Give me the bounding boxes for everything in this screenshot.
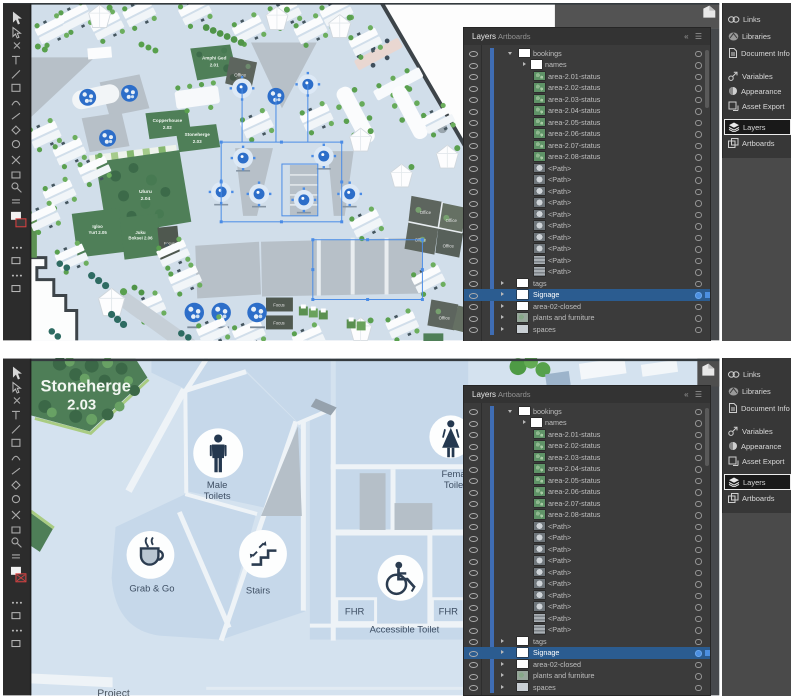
svg-text:Office: Office: [420, 210, 432, 215]
svg-text:Stairs: Stairs: [246, 586, 270, 597]
svg-text:Juku: Juku: [135, 230, 146, 235]
svg-text:Office: Office: [234, 72, 246, 77]
svg-text:Boksei 2.06: Boksei 2.06: [128, 236, 153, 241]
svg-text:Project: Project: [97, 688, 130, 696]
svg-text:Grab & Go: Grab & Go: [129, 584, 174, 595]
svg-text:2.03: 2.03: [67, 396, 96, 413]
svg-text:Stoneherge: Stoneherge: [185, 132, 211, 137]
svg-text:Yurt 2.05: Yurt 2.05: [89, 230, 108, 235]
svg-text:Igloo: Igloo: [92, 224, 103, 229]
svg-text:Office: Office: [439, 315, 451, 320]
svg-text:Amphi Ged: Amphi Ged: [202, 55, 227, 60]
svg-text:Focus: Focus: [273, 302, 284, 307]
svg-text:2.03: 2.03: [193, 139, 202, 144]
svg-text:Office: Office: [443, 244, 455, 249]
svg-text:2.04: 2.04: [141, 196, 151, 202]
svg-text:2.01: 2.01: [210, 62, 219, 67]
svg-text:Stoneherge: Stoneherge: [41, 378, 131, 396]
svg-text:Copperhouse: Copperhouse: [153, 118, 183, 123]
svg-text:FHR: FHR: [439, 607, 459, 618]
svg-text:Toilets: Toilets: [204, 491, 231, 502]
svg-text:Accessible Toilet: Accessible Toilet: [370, 625, 440, 636]
svg-text:Male: Male: [207, 480, 228, 491]
svg-text:2.02: 2.02: [163, 125, 172, 130]
svg-text:Focus: Focus: [273, 320, 284, 325]
svg-text:FHR: FHR: [345, 607, 365, 618]
svg-text:Uluru: Uluru: [139, 189, 152, 195]
svg-text:Office: Office: [446, 218, 458, 223]
